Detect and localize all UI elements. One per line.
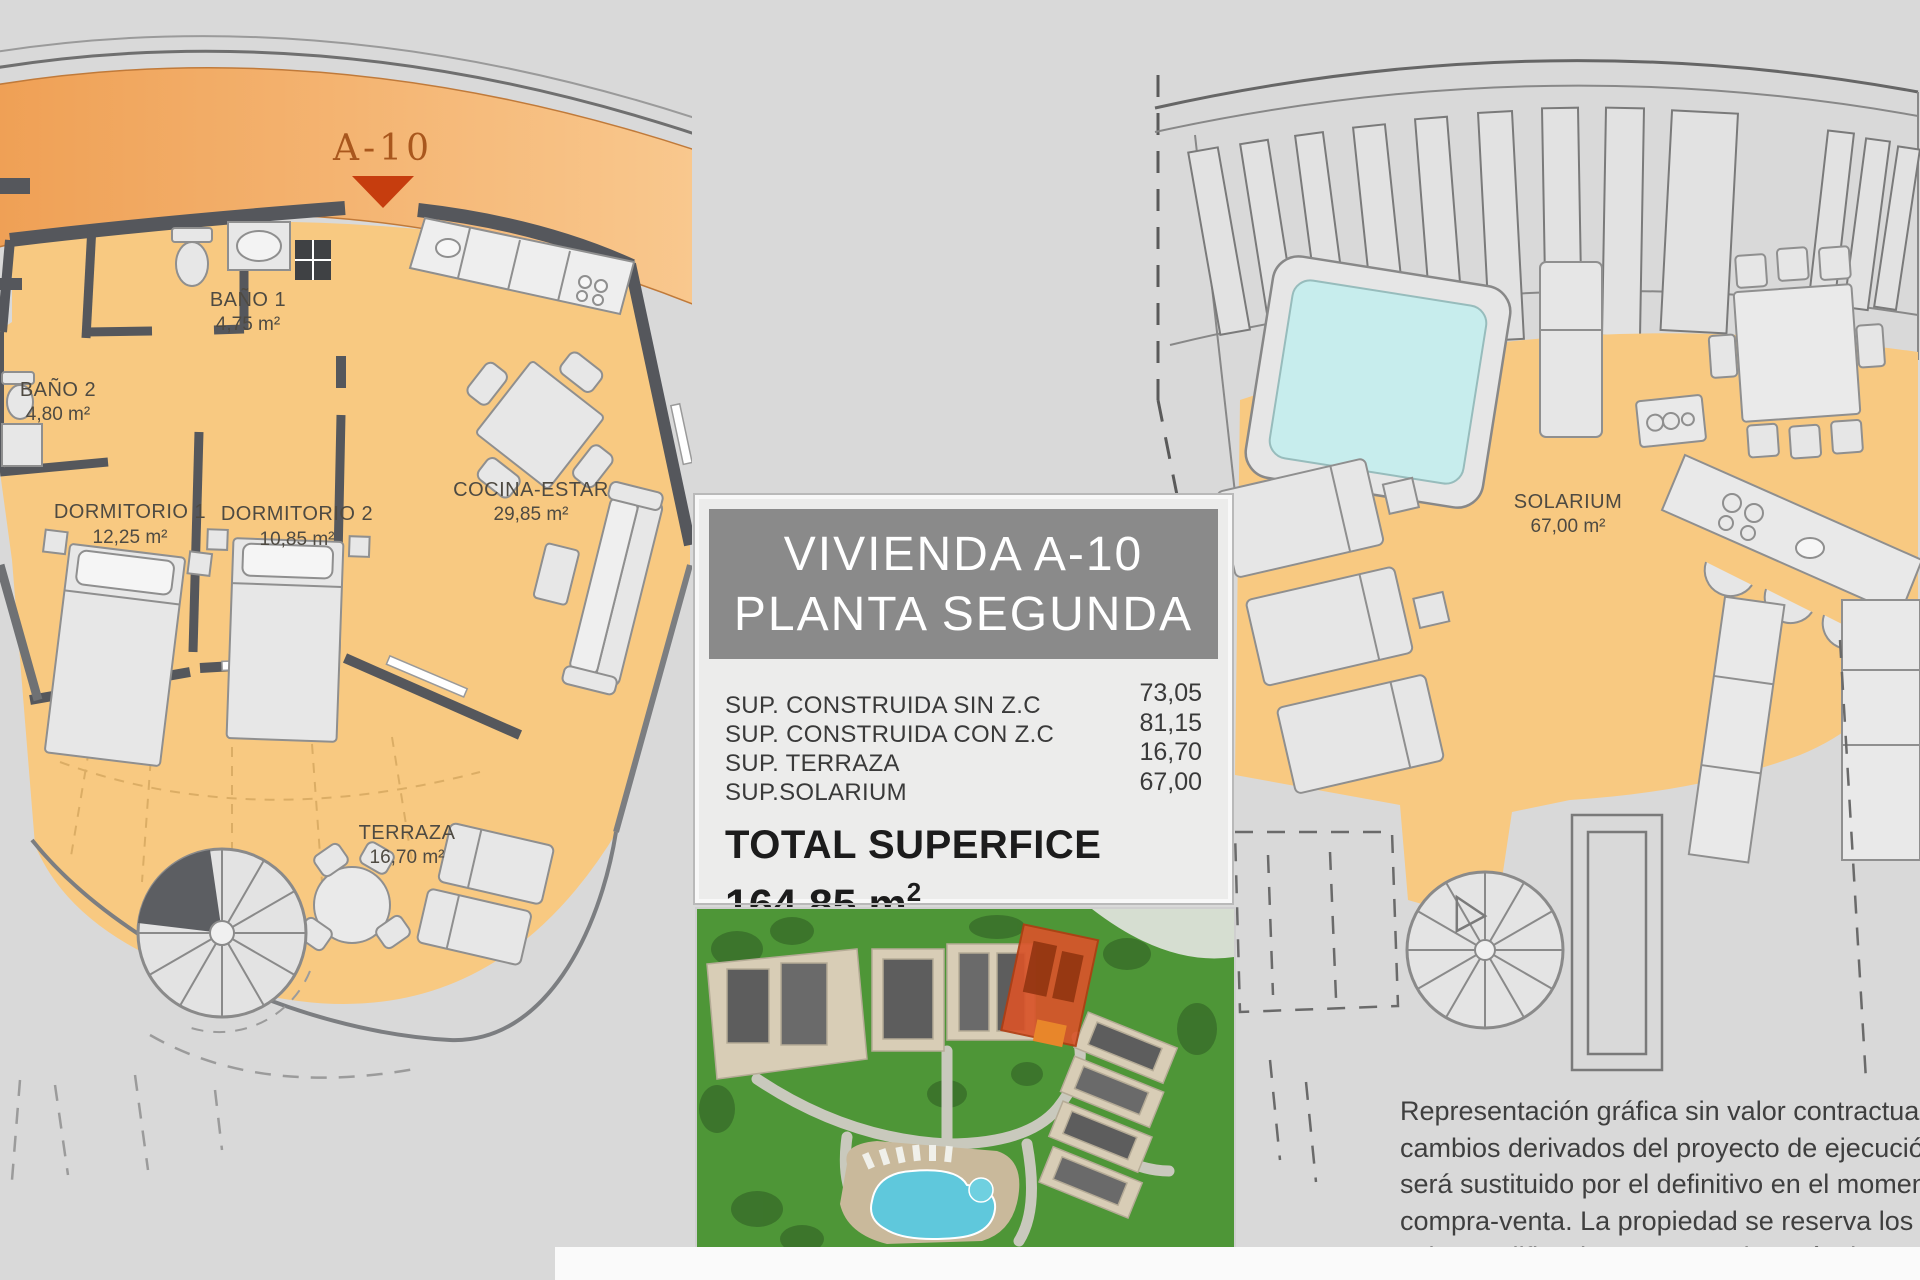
neighbour-shaft <box>1572 815 1662 1070</box>
info-panel: VIVIENDA A-10 PLANTA SEGUNDA SUP. CONSTR… <box>695 495 1232 903</box>
floorplan-sheet: A-10 <box>0 0 1920 1280</box>
measurements-table: SUP. CONSTRUIDA SIN Z.C SUP. CONSTRUIDA … <box>725 679 1202 805</box>
measurement-labels: SUP. CONSTRUIDA SIN Z.C SUP. CONSTRUIDA … <box>725 691 1054 807</box>
pool-area <box>840 1141 1019 1244</box>
room-area-cocina: 29,85 m² <box>494 504 569 525</box>
pergola-outer-arc2 <box>1155 86 1918 132</box>
bottom-white-strip <box>555 1247 1920 1280</box>
measurement-label: SUP.SOLARIUM <box>725 778 1054 807</box>
unit-marker-label: A-10 <box>332 128 433 169</box>
room-label-dormitorio1: DORMITORIO 1 <box>54 501 206 523</box>
shaft <box>295 240 331 280</box>
panel-title-line1: VIVIENDA A-10 <box>709 525 1218 585</box>
room-area-bano2: 4,80 m² <box>26 404 90 425</box>
sink <box>228 222 290 270</box>
total-label: TOTAL SUPERFICE <box>725 823 1202 867</box>
disclaimer-line: compra-venta. La propiedad se reserva lo… <box>1400 1203 1920 1240</box>
panel-title-line2: PLANTA SEGUNDA <box>709 585 1218 645</box>
title-box: VIVIENDA A-10 PLANTA SEGUNDA <box>709 509 1218 659</box>
room-label-cocina: COCINA-ESTAR <box>453 479 609 501</box>
room-label-bano2: BAÑO 2 <box>20 377 96 401</box>
left-floor-plan: A-10 <box>0 0 692 1280</box>
measurement-label: SUP. CONSTRUIDA SIN Z.C <box>725 691 1054 720</box>
room-area-dormitorio1: 12,25 m² <box>93 527 168 548</box>
dashed-left-boundary <box>1158 75 1182 520</box>
room-label-terraza: TERRAZA <box>359 822 456 844</box>
room-area-dormitorio2: 10,85 m² <box>260 529 335 550</box>
measurement-value: 73,05 <box>1139 679 1202 709</box>
measurement-value: 81,15 <box>1139 709 1202 739</box>
room-area-solarium: 67,00 m² <box>1531 516 1606 537</box>
measurement-label: SUP. CONSTRUIDA CON Z.C <box>725 720 1054 749</box>
room-area-terraza: 16,70 m² <box>370 847 445 868</box>
total-value-superscript: 2 <box>907 877 921 907</box>
disclaimer-line: será sustituido por el definitivo en el … <box>1400 1166 1920 1203</box>
dashed-boundary-marks <box>12 1035 420 1180</box>
jacuzzi <box>969 1178 993 1202</box>
right-floor-plan: SOLARIUM 67,00 m² <box>1140 0 1920 1280</box>
disclaimer-line: cambios derivados del proyecto de ejecuc… <box>1400 1130 1920 1167</box>
pergola-outer-arc <box>1155 61 1918 108</box>
bbq <box>1636 395 1706 448</box>
measurement-value: 67,00 <box>1139 768 1202 798</box>
room-area-bano1: 4,75 m² <box>216 314 280 335</box>
room-label-bano1: BAÑO 1 <box>210 287 286 311</box>
pool-lounger <box>1540 262 1602 437</box>
site-aerial-image <box>695 907 1236 1280</box>
measurement-values: 73,05 81,15 16,70 67,00 <box>1139 679 1202 797</box>
solarium-spiral-staircase <box>1407 872 1563 1028</box>
room-label-dormitorio2: DORMITORIO 2 <box>221 503 373 525</box>
measurement-value: 16,70 <box>1139 738 1202 768</box>
room-label-solarium: SOLARIUM <box>1514 491 1622 513</box>
measurement-label: SUP. TERRAZA <box>725 749 1054 778</box>
disclaimer-line: Representación gráfica sin valor contrac… <box>1400 1093 1920 1130</box>
plunge-pool <box>1242 253 1514 512</box>
